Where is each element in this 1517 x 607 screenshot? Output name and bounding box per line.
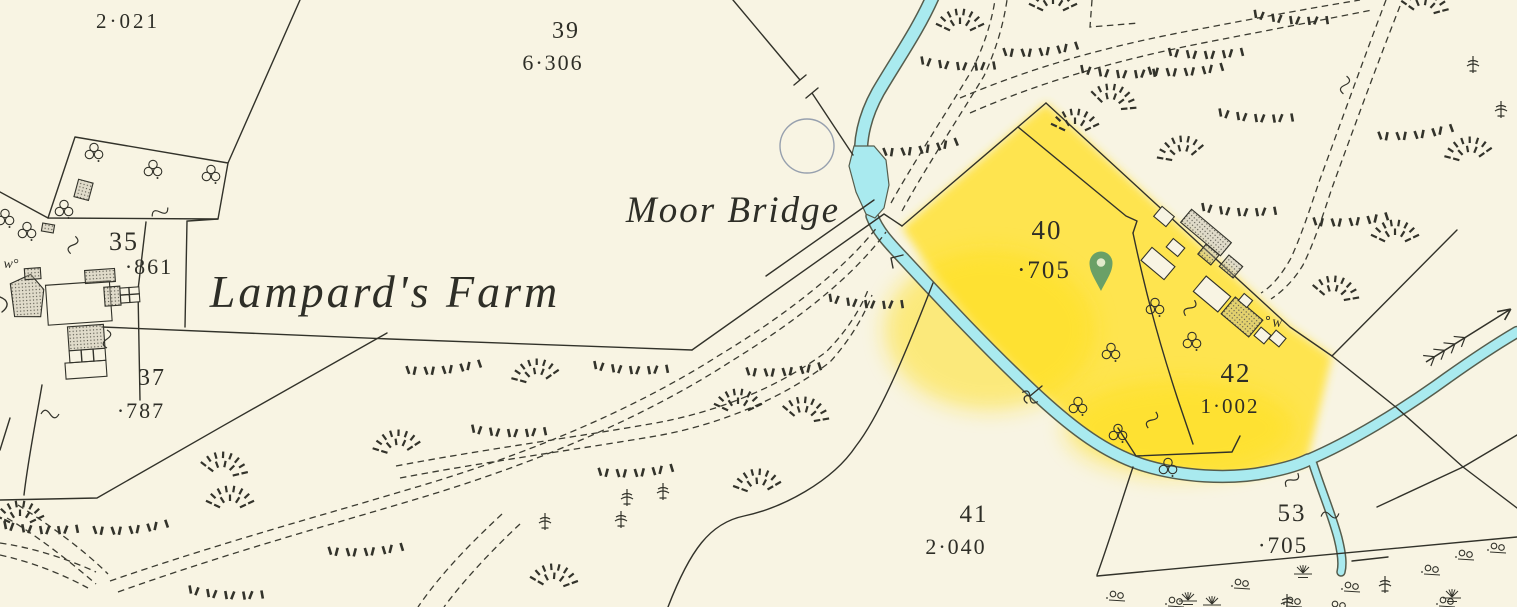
label-lampards-farm: Lampard's Farm [209, 266, 560, 317]
parcel-53-number: 53 [1278, 500, 1307, 527]
label-well-small: w° [4, 257, 19, 272]
label-moor-bridge: Moor Bridge [625, 190, 840, 231]
parcel-39-acreage: 6·306 [522, 50, 583, 75]
label-well: W [1272, 316, 1283, 330]
parcel-42-number: 42 [1221, 358, 1252, 388]
parcel-41-acreage: 2·040 [925, 534, 986, 559]
map-canvas: 2·021 39 6·306 Moor Bridge Lampard's Far… [0, 0, 1517, 607]
parcel-37-number: 37 [138, 365, 166, 391]
highlight-hotspot [1065, 380, 1295, 476]
parcel-35-acreage: ·861 [125, 254, 173, 279]
map-viewport: 2·021 39 6·306 Moor Bridge Lampard's Far… [0, 0, 1517, 607]
parcel-37-acreage: ·787 [117, 398, 165, 423]
parcel-39-number: 39 [552, 18, 580, 44]
location-pin-hole [1097, 258, 1106, 267]
parcel-40-number: 40 [1032, 215, 1063, 245]
parcel-35-number: 35 [109, 227, 139, 256]
parcel-53-acreage: ·705 [1258, 533, 1308, 558]
parcel-40-acreage: ·705 [1017, 257, 1071, 284]
parcel-41-number: 41 [960, 501, 989, 528]
parcel-tl-acreage: 2·021 [96, 9, 160, 33]
parcel-42-acreage: 1·002 [1201, 394, 1260, 418]
